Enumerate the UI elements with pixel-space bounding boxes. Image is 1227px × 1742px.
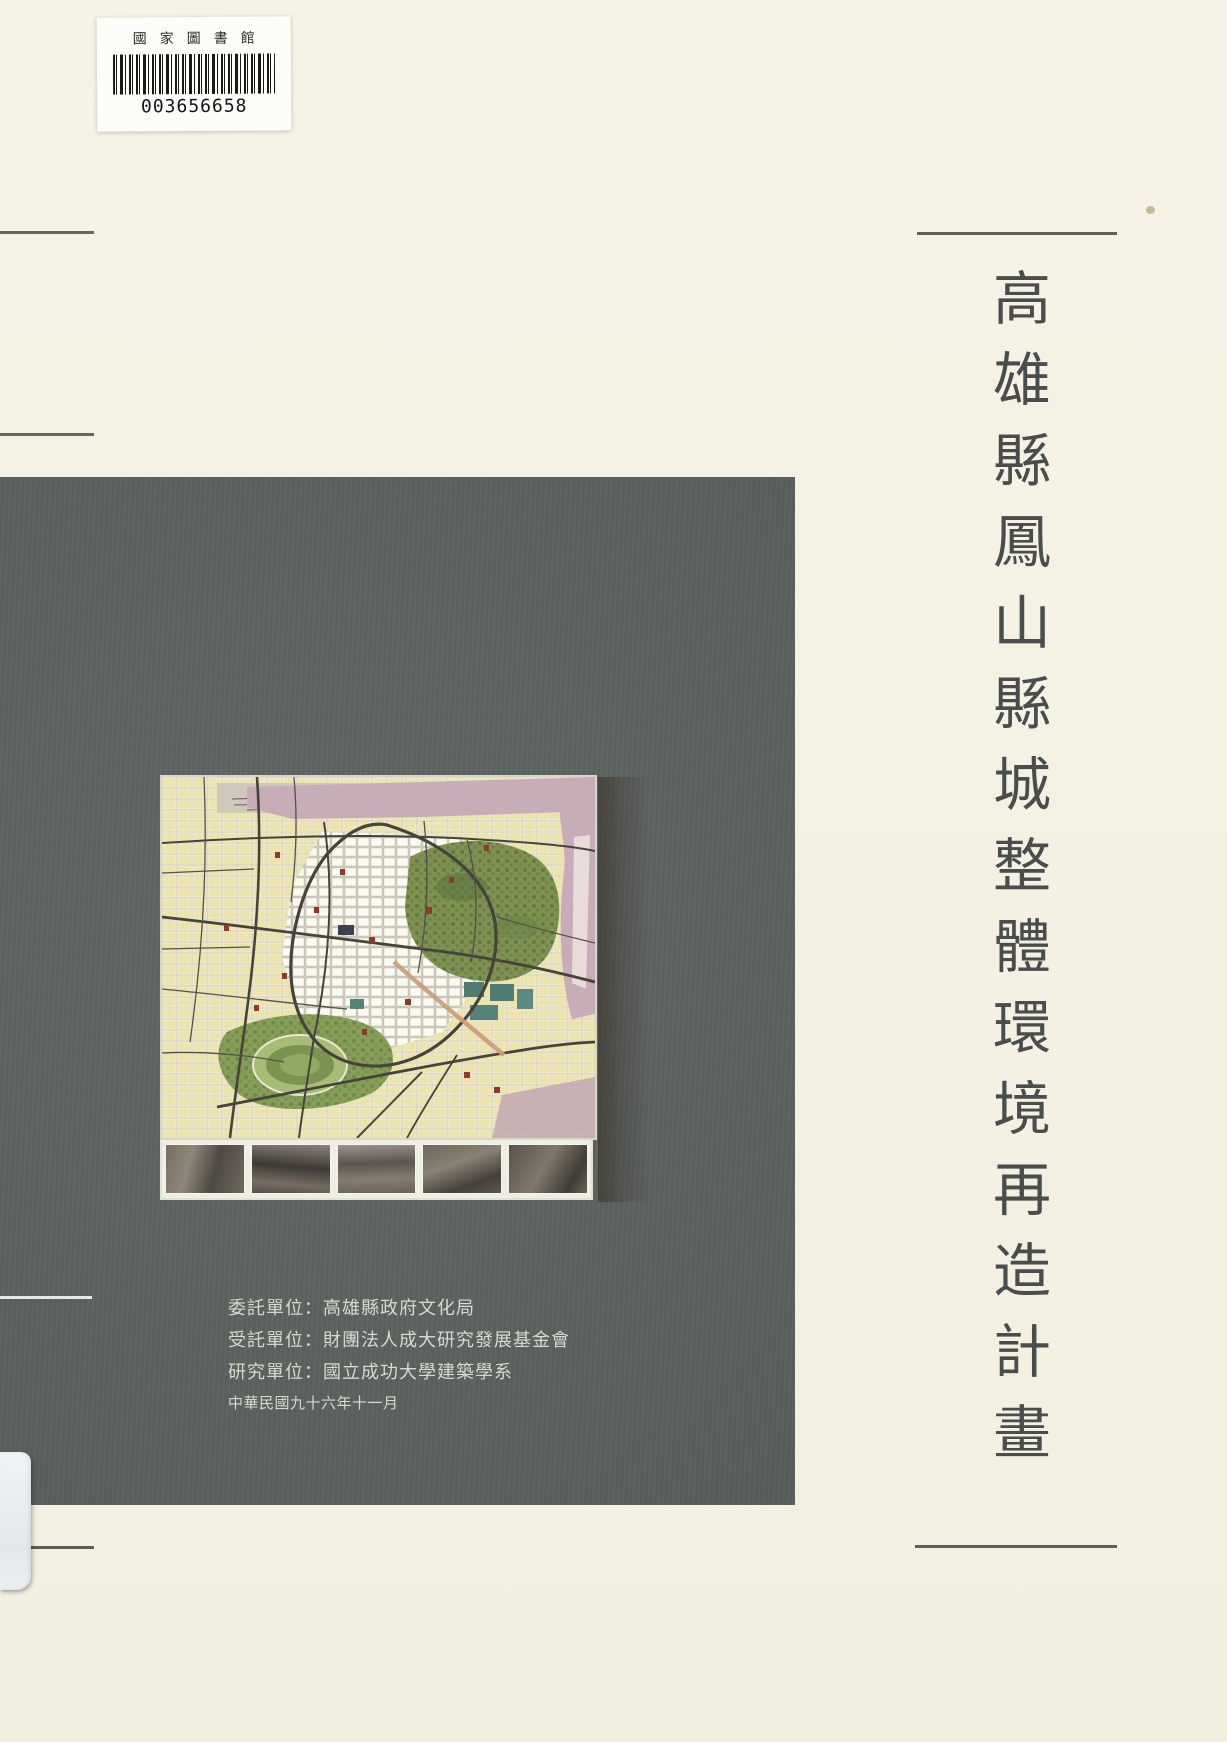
city-plan-map-image (160, 775, 597, 1140)
credit-line-date: 中華民國九十六年十一月 (228, 1388, 570, 1420)
title-rule-bottom (915, 1545, 1117, 1548)
registration-mark-middle (0, 433, 94, 436)
photo (422, 1144, 502, 1194)
library-name-label: 國家圖書館 (97, 27, 291, 48)
photo (508, 1144, 588, 1194)
photo (337, 1144, 417, 1194)
map-graphic (162, 777, 595, 1138)
vertical-title: 高雄縣鳳山縣城整體環境再造計畫 (984, 268, 1048, 1508)
title-rule-top (917, 232, 1117, 235)
credit-line: 研究單位：國立成功大學建築學系 (228, 1356, 570, 1388)
paper-speck (1146, 206, 1155, 214)
book-cover: 國家圖書館 003656658 (0, 0, 1227, 1742)
credit-line: 委託單位：高雄縣政府文化局 (228, 1292, 570, 1324)
map-shadow (598, 777, 650, 1202)
credits-block: 委託單位：高雄縣政府文化局 受託單位：財團法人成大研究發展基金會 研究單位：國立… (228, 1292, 570, 1420)
library-barcode-label: 國家圖書館 003656658 (97, 16, 292, 131)
credit-line: 受託單位：財團法人成大研究發展基金會 (228, 1324, 570, 1356)
registration-mark-top (0, 231, 94, 234)
photo (251, 1144, 331, 1194)
spine-sticker (0, 1452, 31, 1590)
photo-strip (160, 1140, 593, 1200)
barcode-number: 003656658 (97, 95, 291, 117)
photo (165, 1144, 245, 1194)
registration-mark-white (0, 1296, 92, 1299)
map-image-block (160, 775, 597, 1200)
barcode-icon (113, 53, 275, 94)
